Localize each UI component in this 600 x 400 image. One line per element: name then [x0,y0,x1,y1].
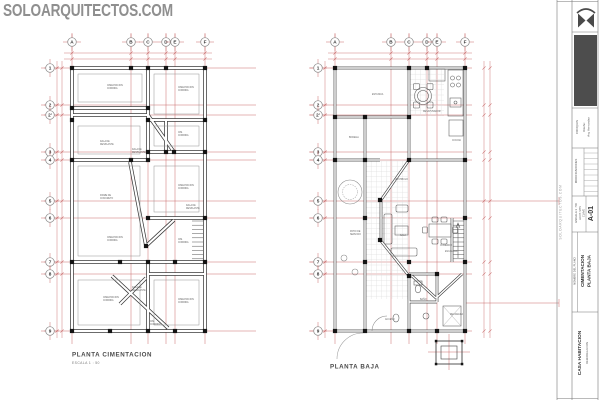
column-square [172,150,176,154]
plan-annotation: CORRIDA [178,187,189,190]
grid-bubble-label: E [173,40,176,45]
grid-bubble-label: 4 [317,158,320,163]
stove-burner [451,83,455,87]
fridge [449,120,463,136]
revision-table-lines [584,153,598,192]
modifications-label: MODIFICACIONES [574,159,578,184]
column-square [407,260,411,264]
tree-trunk [343,185,358,200]
plan-annotation: ESCALERA [445,250,458,253]
acot-label: ACOT. MTS [578,206,582,220]
column-square [435,272,439,276]
plan-annotation: VESTIBULO [395,179,408,181]
column-square [463,260,467,264]
left-plan-scale: ESCALA 1 : 50 [72,361,100,365]
plan-annotation: CORRIDA [178,134,189,137]
grid-bubble-label: 6 [49,216,52,221]
plan-annotation: SALA [400,234,406,237]
plan-annotation: BAÑO [420,298,427,301]
column-square [70,329,74,333]
project-subtitle: REMODELACION [585,342,589,364]
logo-arc [577,9,595,13]
column-square [363,216,367,220]
logo-right-triangle [587,14,595,28]
column-square [203,66,207,70]
grid-bubble-label: 8 [49,272,52,277]
plant [341,255,347,261]
column-square [70,66,74,70]
column-square [407,66,411,70]
plan-annotation: DESPLANTE [186,207,200,210]
left-plan-title: PLANTA CIMENTACION [72,352,152,359]
plan-annotation: PATIO DE [350,230,361,233]
design-label: Diseño: [582,122,586,132]
column-square [108,329,112,333]
plan-annotation: CIMENTACION [178,86,194,89]
croquis-label: CROQUIS [575,120,579,134]
plan-annotation: DALA DE [132,286,142,289]
extended-reference-lines [465,197,559,307]
grid-bubble-label: 4 [49,158,52,163]
plan-annotation: CIMENTACION [107,84,123,87]
plan-annotation: DESPLANTE [132,289,146,292]
firm-logo [577,9,595,28]
washbasin [423,313,429,319]
stove-burner [451,76,455,80]
clave-label: CLAVE [582,209,586,218]
plan-annotation: ACCESO [385,318,395,321]
column-square [333,115,337,119]
column-square [173,260,177,264]
plan-name-line2: PLANTA BAJA [587,254,592,287]
tree-canopy [338,180,362,204]
kitchen-sink [450,98,461,107]
column-square [146,158,150,162]
title-block: SOLOARQUITECTOS.COM CROQUIS Diseño: Arq.… [557,0,598,400]
plan-annotation: CIMENTACION [178,298,194,301]
stove-burner [457,83,461,87]
grid-bubble-label: 8 [317,272,320,277]
plan-annotation: DESAYUNADOR [423,110,441,113]
column-square [129,158,133,162]
sofa [391,248,417,256]
plan-annotation: DESPLANTE [132,151,146,154]
kitchen-counter [448,70,463,116]
plan-annotation: CIMENTACION [178,184,194,187]
right-stairs [453,221,464,259]
column-square [378,198,382,202]
shower-cross [443,306,461,326]
grid-bubble-label: F [464,40,467,45]
plan-annotation: DALA DE [186,204,196,207]
grid-bubble-label: F [204,40,207,45]
right-column-squares [333,66,467,333]
designer-name: Arq. Hernandez [587,117,591,137]
grid-bubble-label: 1 [317,66,320,71]
dining-table [429,224,451,237]
plan-annotation: CIMENTACION [103,296,119,299]
column-square [203,216,207,220]
column-square [407,274,411,278]
column-square [70,118,74,122]
column-detail [428,334,470,370]
column-square [425,66,429,70]
logo-left-triangle [578,14,586,28]
column-square [435,329,439,333]
grid-bubble-label: 7 [317,260,320,265]
column-square [146,118,150,122]
right-plan-title: PLANTA BAJA [330,364,380,371]
margin-watermark: SOLOARQUITECTOS.COM [559,184,563,239]
scale-label: ESCALA 1 : 50 [574,203,578,223]
grid-bubble-label: 5 [49,199,52,204]
column-square [70,158,74,162]
chair [427,84,433,90]
plan-annotation: CORRIDA [178,241,189,244]
plan-annotation: ESTANCIA [372,93,384,96]
plan-name-label: NOMBRE DEL PLANO [573,257,577,285]
plan-annotation: CONCRETO [100,198,113,200]
plan-annotation: SERVICIO [350,234,361,236]
watermark: SOLOARQUITECTOS.COM [3,2,173,21]
column-square [407,158,411,162]
grid-bubble-label: E [435,40,438,45]
column-square [146,260,150,264]
plan-annotation: CIM. [178,132,183,134]
furniture-layer [337,69,463,359]
plan-annotation: DESPLANTE [100,143,114,146]
column-square [203,329,207,333]
column-square [146,329,150,333]
column-square [463,329,467,333]
grid-bubble-label: 2' [48,113,52,118]
floor-tile-hatch [366,69,444,299]
column-square [146,66,150,70]
plan-annotation: BODEGA [349,136,359,139]
column-square [363,115,367,119]
plan-annotation: CORRIDA [178,89,189,92]
column-square [203,118,207,122]
plan-name-line1: CIMENTACION [580,254,585,287]
floorplan-wall-outline [335,68,465,331]
sheet-canvas: SOLOARQUITECTOS.COM ABCDEF122'3456789ABC… [0,0,600,400]
grid-bubble-label: 9 [317,329,320,334]
plan-annotation: CIM. [150,321,155,323]
plan-annotation: COCINA [452,139,461,142]
sink-drain [454,101,457,104]
plan-annotation: RECAMARA [450,313,463,316]
column-square [129,66,133,70]
column-square [203,260,207,264]
column-square [164,66,168,70]
plan-annotation: DALA DE [100,140,110,143]
column-square [118,260,122,264]
gate-swing-arc [337,333,363,359]
grid-bubble-label: 6 [317,216,320,221]
left-stairs [192,221,203,259]
plan-annotation: CIM. [178,239,183,241]
column-square [463,158,467,162]
column-square [70,106,74,110]
column-square [173,329,177,333]
armchair [396,205,408,212]
drawing-sheet: SOLOARQUITECTOS.COM ABCDEF122'3456789ABC… [0,0,600,400]
column-square [463,216,467,220]
plan-annotation: CORRIDA [107,87,118,90]
chair [441,239,447,244]
plan-annotation: DALA DE [132,148,142,151]
column-square [144,244,148,248]
column-square [146,216,150,220]
grid-bubble-label: 1 [49,66,52,71]
grid-bubble-label: 9 [49,329,52,334]
sheet-number: A-01 [588,206,595,221]
stove-burner [457,76,461,80]
column-square [363,158,367,162]
column-square [378,238,382,242]
plan-annotation: CIMENTACION [107,236,123,239]
column-square [333,329,337,333]
column-square [333,158,337,162]
column-square [70,260,74,264]
column-square [407,115,411,119]
plan-annotation: CORRIDA [150,323,161,326]
plan-annotation: COMEDOR [440,245,452,247]
column-square [407,329,411,333]
grid-bubble-label: 5 [317,199,320,204]
firm-info-dark-box [574,35,597,106]
column-square [146,106,150,110]
column-square [463,66,467,70]
plan-annotation: CORRIDA [107,239,118,242]
column-square [164,150,168,154]
project-name: CASA HABITACION [577,330,583,375]
plan-annotation: FIRME DE [100,195,111,197]
grid-bubble-label: 7 [49,260,52,265]
column-square [203,150,207,154]
toilet [415,285,421,293]
column-square [363,260,367,264]
column-square [363,329,367,333]
column-square [333,66,337,70]
grid-bubble-label: 2' [316,113,320,118]
column-square [146,150,150,154]
plan-annotation: CORRIDA [178,301,189,304]
right-plan-walls [335,68,465,331]
floorplan-wall-core [335,68,465,331]
plan-annotation: CORRIDA [103,299,114,302]
